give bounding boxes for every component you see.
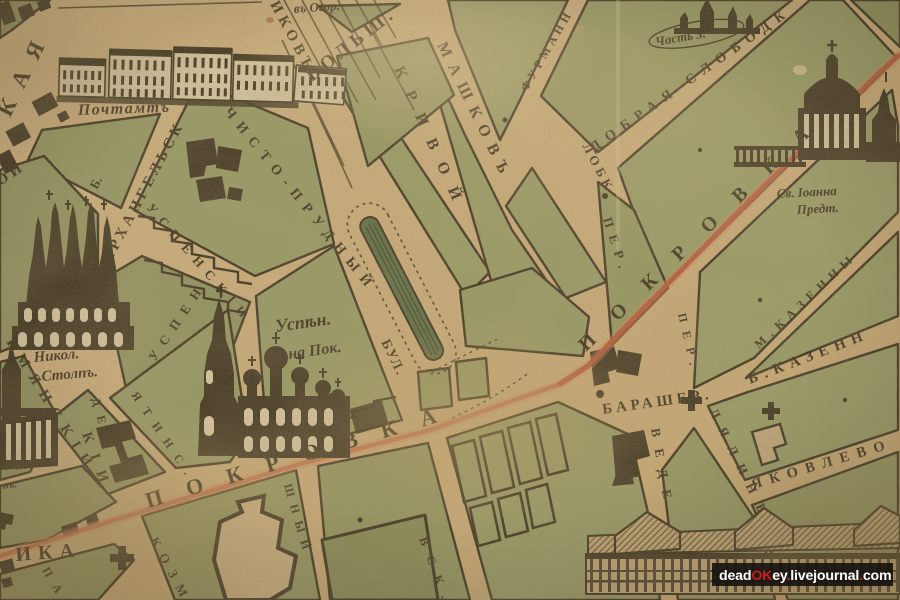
svg-text:deadOKey.livejournal.com: deadOKey.livejournal.com bbox=[719, 568, 891, 584]
